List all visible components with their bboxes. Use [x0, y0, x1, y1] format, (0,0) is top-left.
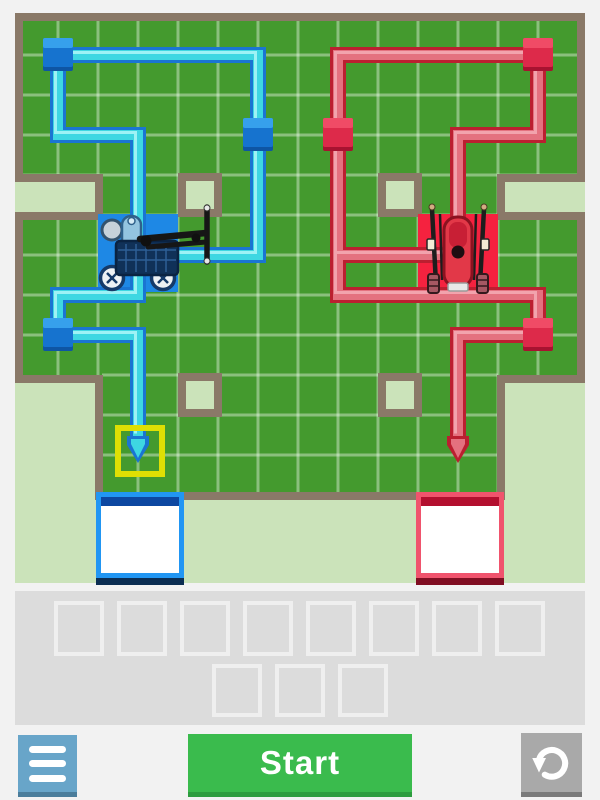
command-slot[interactable]: [306, 601, 356, 656]
blue-waypoint-node: [43, 318, 73, 351]
red-goal: [416, 492, 504, 585]
game-screen: Start: [0, 0, 600, 800]
blue-waypoint-node: [243, 118, 273, 151]
menu-button[interactable]: [18, 735, 77, 797]
start-button[interactable]: Start: [188, 734, 412, 797]
blue-waypoint-node: [43, 38, 73, 71]
edge-notch: [15, 182, 97, 213]
hamburger-icon: [29, 746, 66, 782]
reset-button[interactable]: [521, 733, 582, 797]
edge-notch: [503, 182, 585, 213]
command-tray: [15, 591, 585, 725]
puzzle-board[interactable]: [0, 0, 600, 588]
command-slot[interactable]: [495, 601, 545, 656]
command-slot[interactable]: [275, 664, 325, 717]
blue-goal: [96, 492, 184, 585]
command-slot[interactable]: [117, 601, 167, 656]
red-waypoint-node: [523, 38, 553, 71]
command-slot[interactable]: [212, 664, 262, 717]
command-slot[interactable]: [369, 601, 419, 656]
command-slot[interactable]: [243, 601, 293, 656]
command-slot[interactable]: [338, 664, 388, 717]
command-slot[interactable]: [54, 601, 104, 656]
command-slot[interactable]: [432, 601, 482, 656]
command-slot[interactable]: [180, 601, 230, 656]
red-waypoint-node: [323, 118, 353, 151]
rotate-ccw-icon: [532, 743, 572, 783]
start-label: Start: [260, 744, 340, 782]
red-waypoint-node: [523, 318, 553, 351]
